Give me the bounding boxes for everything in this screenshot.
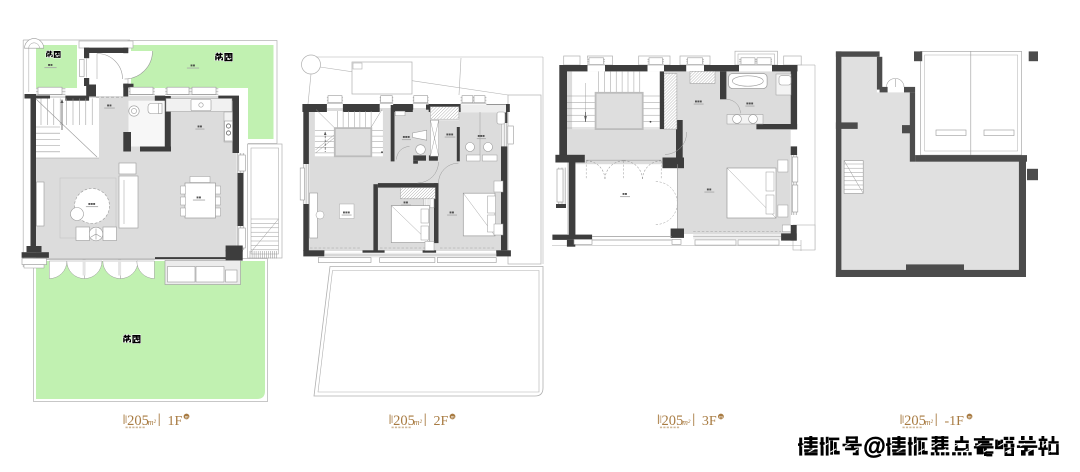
svg-text:m: m	[968, 415, 972, 420]
svg-text:2F: 2F	[434, 414, 449, 429]
svg-text:m: m	[451, 415, 455, 420]
svg-text:205: 205	[662, 413, 684, 429]
svg-text:m²: m²	[414, 418, 423, 427]
svg-text:205: 205	[393, 413, 415, 429]
svg-text:205: 205	[904, 413, 926, 429]
svg-text:@: @	[863, 433, 885, 459]
svg-text:m²: m²	[925, 418, 934, 427]
svg-text:m: m	[185, 415, 189, 420]
svg-text:m²: m²	[148, 418, 157, 427]
svg-text:-1F: -1F	[945, 414, 965, 429]
svg-text:205: 205	[127, 413, 149, 429]
svg-text:1F: 1F	[168, 414, 183, 429]
svg-text:3F: 3F	[702, 414, 717, 429]
svg-text:m: m	[719, 415, 723, 420]
svg-text:m²: m²	[682, 418, 691, 427]
